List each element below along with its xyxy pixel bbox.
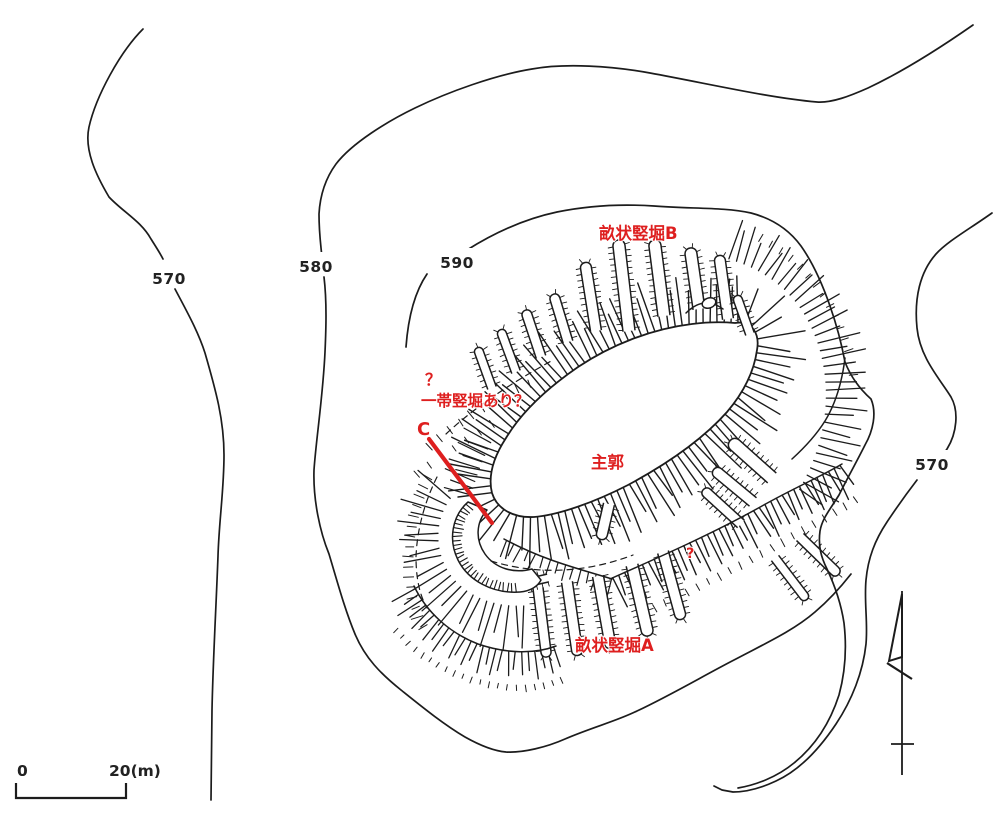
vertical-moat-trench (797, 533, 841, 576)
north-arrow-flag (889, 594, 902, 661)
north-arrow-barb (887, 663, 912, 679)
north-arrow (887, 591, 914, 775)
annotation-question-nw: ？ (425, 370, 441, 389)
annotation-section-c: C (417, 419, 430, 440)
annotation-belt-note: 一帯竪堀あり？ (421, 391, 530, 410)
scale-start-label: 0 (17, 762, 28, 780)
contour-570-left (88, 29, 224, 800)
scale-bar: 0 20(m) (16, 762, 161, 798)
vertical-moat-trench (771, 555, 808, 600)
elevation-label-570-right: 570 (915, 456, 949, 474)
annotation-question-se: ? (686, 546, 694, 562)
hachure-band (394, 628, 563, 691)
vertical-moat-trench (522, 310, 546, 359)
elevation-label-580: 580 (299, 258, 333, 276)
annotation-tatebori-b: 畝状竪堀B (599, 223, 678, 243)
main-bailey-plateau (491, 322, 758, 517)
dashed-south-berm (491, 555, 633, 570)
vertical-moat-trench (649, 240, 670, 317)
site-map-canvas: 570 580 590 570 畝状竪堀B ？ 一帯竪堀あり？ C 主郭 ? 畝… (0, 0, 1000, 820)
vertical-moat-trench (550, 294, 573, 343)
castle-survey-map: 570 580 590 570 畝状竪堀B ？ 一帯竪堀あり？ C 主郭 ? 畝… (0, 0, 1000, 820)
vertical-moat-trench (497, 329, 520, 373)
vertical-moat-trench (626, 564, 653, 636)
contour-570-right (714, 213, 992, 792)
annotation-main-bailey: 主郭 (591, 452, 625, 472)
elevation-label-590: 590 (440, 254, 474, 272)
annotation-tatebori-a: 畝状竪堀A (575, 635, 654, 655)
vertical-moat-trench (474, 347, 496, 389)
scale-end-label: 20(m) (109, 762, 161, 780)
elevation-label-570-left: 570 (152, 270, 186, 288)
vertical-moat-trench (533, 587, 551, 657)
scale-bar-rule (16, 783, 126, 798)
